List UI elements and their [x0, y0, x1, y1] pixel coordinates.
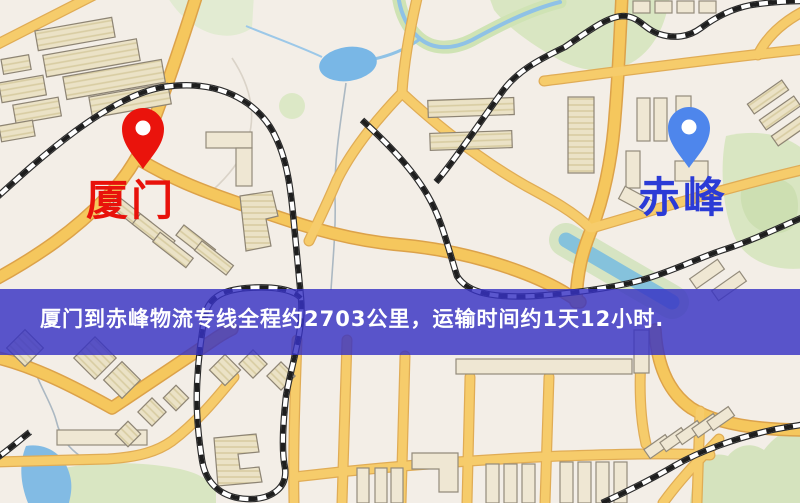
map-image: [0, 0, 800, 503]
origin-city-label: 厦门: [86, 180, 176, 222]
destination-city-label: 赤峰: [638, 177, 728, 219]
route-info-text: 厦门到赤峰物流专线全程约2703公里，运输时间约1天12小时.: [40, 303, 664, 333]
route-info-banner: 厦门到赤峰物流专线全程约2703公里，运输时间约1天12小时.: [0, 289, 800, 355]
logistics-route-map: 厦门 赤峰 厦门到赤峰物流专线全程约2703公里，运输时间约1天12小时.: [0, 0, 800, 503]
